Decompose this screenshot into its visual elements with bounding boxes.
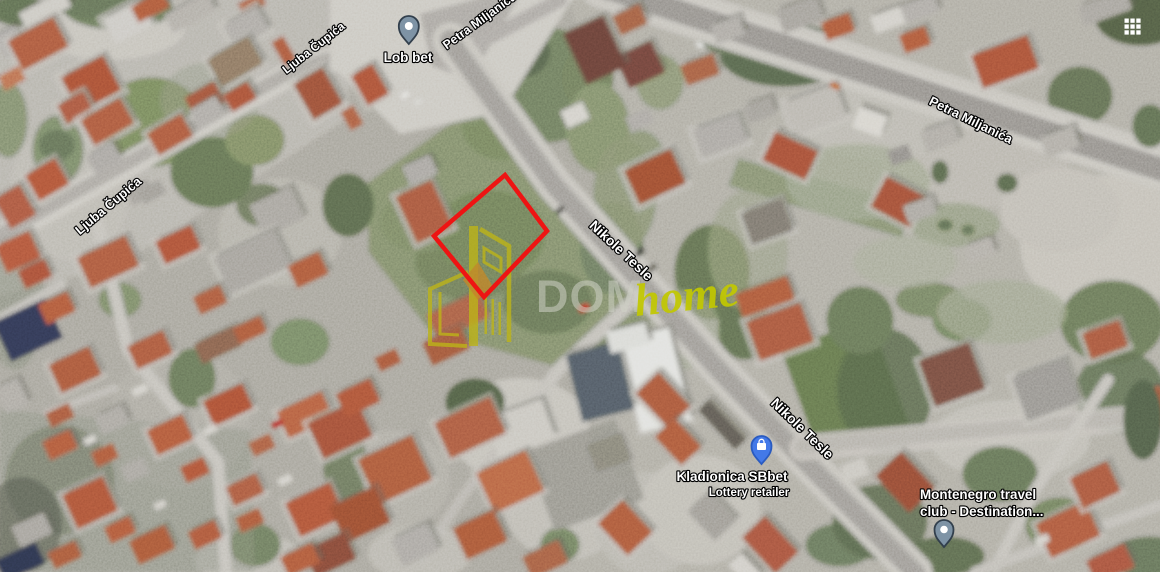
svg-text:Montenegro travel: Montenegro travel — [920, 487, 1036, 502]
svg-text:club - Destination...: club - Destination... — [920, 504, 1044, 519]
svg-text:Kladionica SBbet: Kladionica SBbet — [676, 469, 788, 484]
svg-text:DOM: DOM — [536, 271, 644, 322]
svg-text:Lob bet: Lob bet — [384, 50, 433, 65]
svg-text:Lottery retailer: Lottery retailer — [709, 487, 790, 499]
